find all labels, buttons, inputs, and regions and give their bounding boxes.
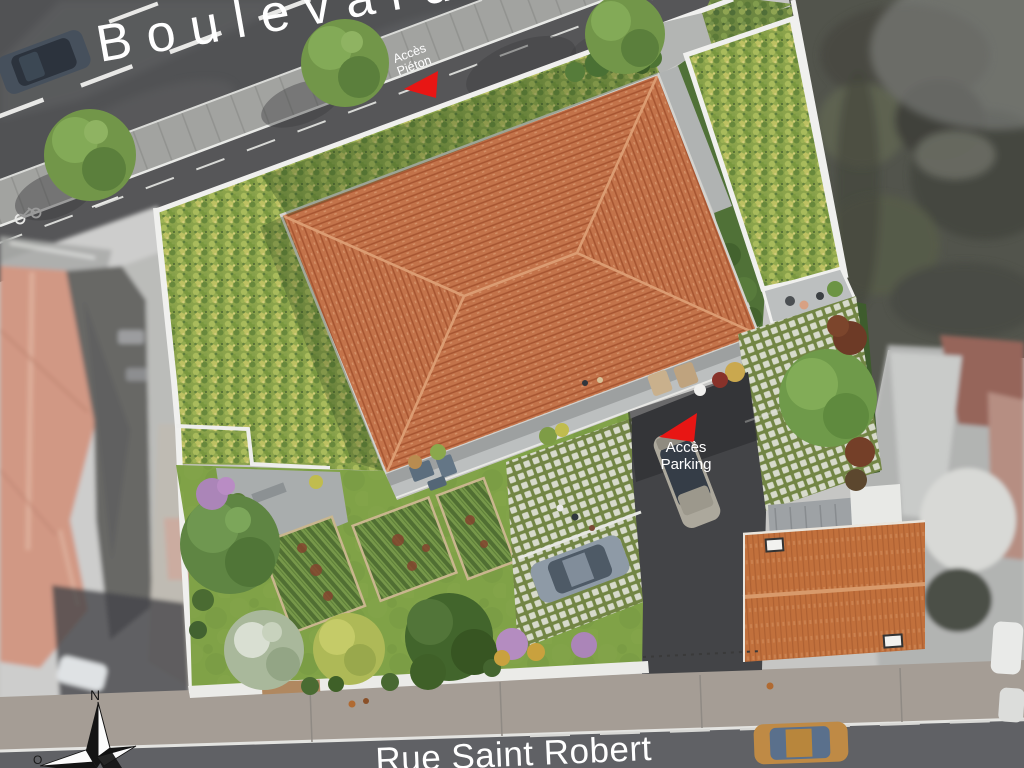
svg-text:Parking: Parking xyxy=(661,456,712,473)
svg-text:Accès: Accès xyxy=(666,439,707,456)
svg-text:O: O xyxy=(33,753,42,767)
svg-text:N: N xyxy=(90,687,100,703)
